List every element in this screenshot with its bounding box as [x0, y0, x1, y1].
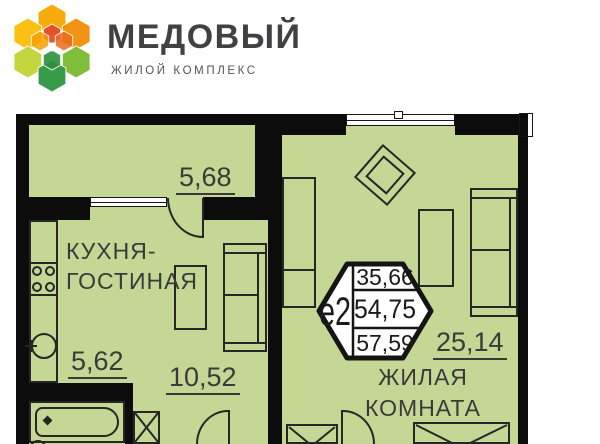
stove-burner-icon	[45, 282, 55, 292]
bed-icon	[413, 422, 510, 444]
apartment-type-badge: е2 35,66 54,75 57,59	[315, 259, 435, 363]
wall-divider	[268, 220, 282, 444]
kitchen-sofa-backrest	[257, 252, 259, 344]
kitchen-sofa-armrest	[223, 342, 267, 344]
hall-area-label: 5,62	[68, 346, 127, 377]
living-sofa-seat-divider	[470, 249, 510, 251]
badge-area-3: 57,59	[356, 330, 414, 356]
living-window-handle-icon	[394, 111, 403, 119]
wall-pier-left-of-window	[16, 197, 90, 220]
entrance-door-leaf	[228, 410, 230, 444]
wall-right	[518, 114, 528, 444]
header: МЕДОВЫЙ ЖИЛОЙ КОМПЛЕКС	[0, 0, 600, 100]
hall-closet	[133, 411, 160, 444]
kitchen-area-label: 10,52	[166, 362, 240, 393]
wall-bathroom-top	[16, 383, 133, 401]
kitchen-sofa-seat-divider	[223, 294, 259, 296]
badge-area-2: 54,75	[354, 294, 416, 324]
living-name-label: ЖИЛАЯ КОМНАТА	[348, 362, 498, 424]
balcony-area-label: 5,68	[176, 162, 235, 193]
kitchen-sofa-armrest	[223, 252, 267, 254]
kitchen-living-name-label: КУХНЯ- ГОСТИНАЯ	[66, 236, 198, 296]
stove-burner-icon	[32, 282, 42, 292]
vent-shaft-marker	[519, 113, 533, 137]
stove-burner-icon	[45, 266, 55, 276]
badge-type-label: е2	[319, 290, 351, 334]
living-window-sill	[346, 126, 455, 135]
wall-living-top-left	[282, 114, 346, 135]
closet-cross-icon	[135, 413, 158, 442]
bed-cover-icon	[415, 424, 508, 442]
kitchen-window-mullion	[91, 202, 166, 204]
wall-bathroom-right	[125, 401, 133, 444]
sink-tap-icon	[30, 340, 32, 352]
armchair-cover-icon	[288, 426, 336, 442]
kitchen-window	[90, 197, 167, 207]
wall-balcony-top	[16, 114, 262, 125]
stove-burner-icon	[32, 266, 42, 276]
brand-subtitle: ЖИЛОЙ КОМПЛЕКС	[111, 65, 258, 77]
honeycomb-logo-icon	[6, 2, 98, 94]
badge-area-1: 35,66	[356, 264, 414, 290]
living-window-mullion	[347, 120, 454, 122]
brand-title: МЕДОВЫЙ	[107, 18, 301, 57]
living-wardrobe-divider	[282, 269, 316, 271]
floorplan-page: МЕДОВЫЙ ЖИЛОЙ КОМПЛЕКС	[0, 0, 600, 444]
living-sofa-backrest	[509, 197, 511, 307]
living-area-label: 25,14	[433, 327, 507, 358]
wall-pier-right-of-door	[203, 197, 282, 220]
living-wardrobe	[282, 177, 316, 308]
armchair-icon	[286, 424, 338, 444]
kitchen-sofa	[223, 243, 267, 352]
